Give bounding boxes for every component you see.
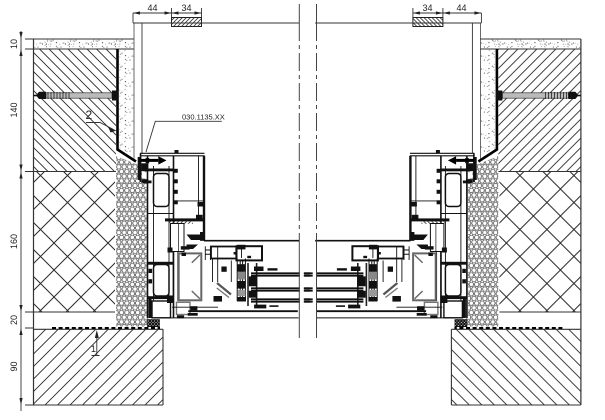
svg-text:20: 20 — [9, 315, 19, 325]
svg-text:44: 44 — [456, 3, 466, 13]
svg-text:1: 1 — [91, 344, 96, 354]
svg-text:90: 90 — [9, 361, 19, 371]
svg-text:34: 34 — [422, 3, 432, 13]
svg-text:10: 10 — [9, 39, 19, 49]
svg-text:2: 2 — [86, 108, 93, 122]
svg-text:030.1135.XX: 030.1135.XX — [182, 113, 225, 122]
svg-text:34: 34 — [181, 3, 191, 13]
svg-text:140: 140 — [9, 102, 19, 117]
svg-text:44: 44 — [147, 3, 157, 13]
svg-text:160: 160 — [9, 234, 19, 249]
